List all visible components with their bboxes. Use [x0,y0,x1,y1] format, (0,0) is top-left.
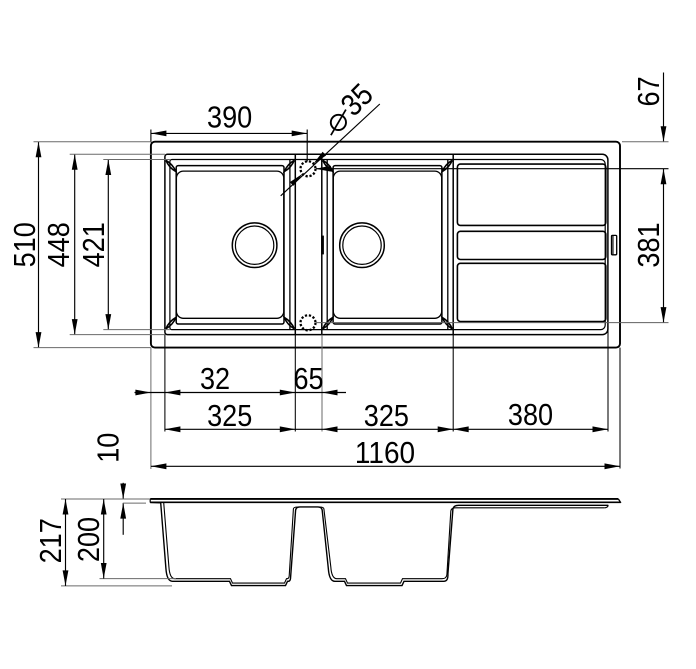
svg-text:67: 67 [631,76,666,106]
svg-text:448: 448 [41,222,76,267]
svg-text:1160: 1160 [355,435,415,470]
svg-text:65: 65 [293,361,323,396]
svg-text:32: 32 [200,361,230,396]
svg-text:421: 421 [76,222,111,267]
svg-text:217: 217 [33,518,68,563]
svg-text:325: 325 [207,398,252,433]
svg-text:390: 390 [207,100,252,135]
svg-text:10: 10 [91,433,126,463]
svg-text:381: 381 [631,222,666,267]
svg-text:510: 510 [7,222,42,267]
svg-text:200: 200 [71,517,106,562]
svg-text:325: 325 [364,398,409,433]
svg-text:380: 380 [508,397,553,432]
